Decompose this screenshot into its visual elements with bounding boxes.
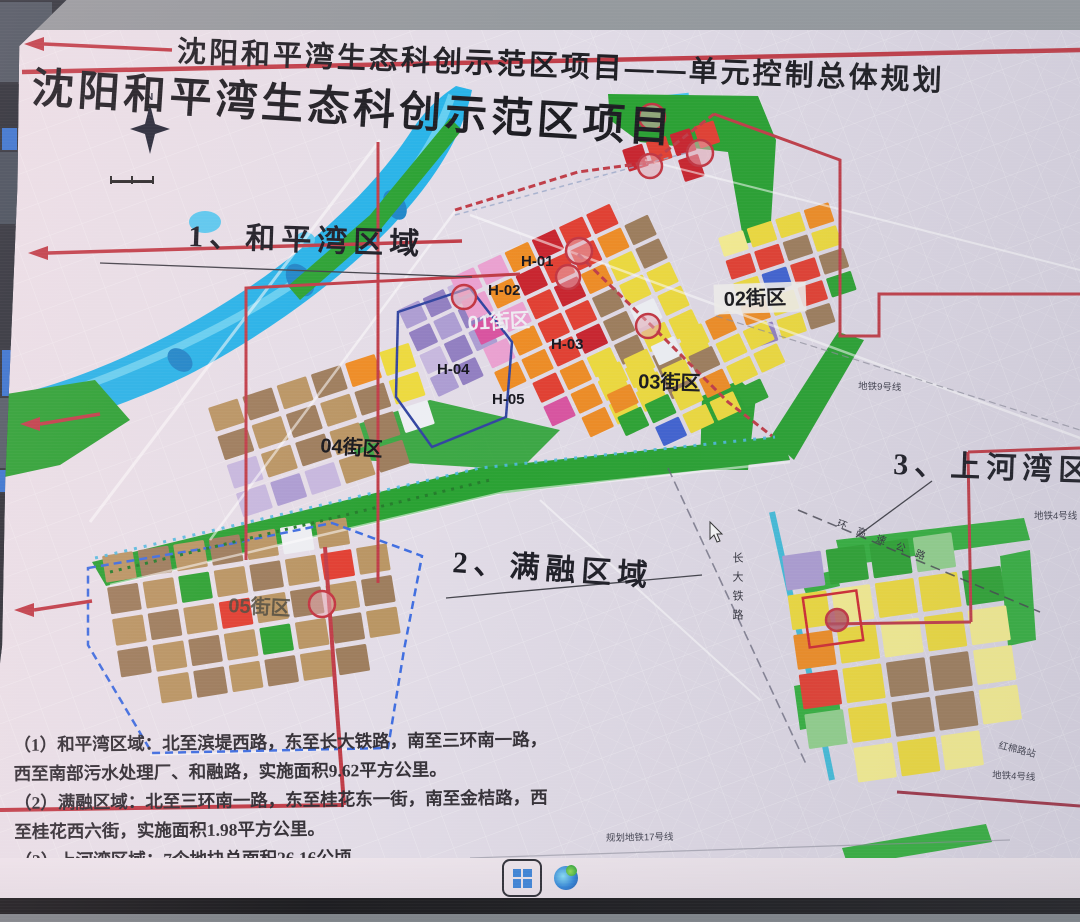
parcel xyxy=(886,657,929,697)
screen-bezel xyxy=(0,898,1080,914)
parcel xyxy=(229,661,264,693)
parcel xyxy=(804,709,847,749)
parcel xyxy=(285,555,320,587)
parcel xyxy=(153,640,188,672)
parcel xyxy=(875,578,918,618)
parcel xyxy=(897,736,940,776)
unit-h01-label: H-01 xyxy=(521,253,554,270)
district-02-label: 02街区 xyxy=(723,285,786,311)
metro-9-label: 地铁9号线 xyxy=(858,380,902,394)
parcel xyxy=(117,646,152,678)
parcel xyxy=(193,666,228,698)
unit-h03-label: H-03 xyxy=(551,336,584,353)
parcel xyxy=(148,609,183,641)
parcel xyxy=(848,703,891,743)
windows-start-icon xyxy=(513,869,532,888)
district-05-label: 05街区 xyxy=(228,593,291,620)
parcel xyxy=(143,577,178,609)
parcel xyxy=(244,529,279,561)
parcel xyxy=(929,651,972,691)
parcel xyxy=(826,544,869,584)
edge-browser-button[interactable] xyxy=(554,866,578,890)
parcel xyxy=(793,630,836,670)
photo-of-screen: N 1、和平湾区域 2、满融区域 3、上河湾区域 01街区 02街区 03街区 … xyxy=(0,0,1080,922)
parcel xyxy=(967,605,1010,645)
windows-taskbar xyxy=(0,858,1080,898)
parcel xyxy=(183,603,218,635)
unit-h04-label: H-04 xyxy=(437,361,470,378)
start-button[interactable] xyxy=(502,859,542,897)
parcel xyxy=(799,669,842,709)
parcel xyxy=(962,566,1005,606)
district-03-label: 03街区 xyxy=(638,369,701,395)
parcel xyxy=(366,607,401,639)
parcel xyxy=(335,644,370,676)
metro-17-label: 规划地铁17号线 xyxy=(606,831,674,844)
parcel xyxy=(259,623,294,655)
parcel xyxy=(973,645,1016,685)
parcel xyxy=(330,612,365,644)
parcel xyxy=(941,730,984,770)
parcel xyxy=(224,629,259,661)
parcel xyxy=(188,635,223,667)
parcel xyxy=(782,551,825,591)
parcel xyxy=(112,614,147,646)
unit-h05-label: H-05 xyxy=(492,391,525,408)
parcel xyxy=(295,618,330,650)
parcel xyxy=(107,583,142,615)
parcel xyxy=(178,571,213,603)
parcel xyxy=(249,560,284,592)
railway-label: 长大铁路 xyxy=(731,552,744,628)
parcel xyxy=(356,543,391,575)
unit-h02-label: H-02 xyxy=(488,282,521,299)
note-manrong: （2）满融区域：北至三环南一路，东至桂花东一街，南至金桔路，西至桂花西六街，实施… xyxy=(14,783,565,847)
parcel xyxy=(918,572,961,612)
parcel xyxy=(300,649,335,681)
metro-4-label-lower: 地铁4号线 xyxy=(992,769,1036,783)
parcel xyxy=(158,672,193,704)
notes-block: （1）和平湾区域：北至滨堤西路，东至长大铁路，南至三环南一路，西至南部污水处理厂… xyxy=(13,725,564,875)
parcel xyxy=(979,685,1022,725)
parcel xyxy=(842,663,885,703)
parcel xyxy=(935,691,978,731)
metro-4-label-upper: 地铁4号线 xyxy=(1034,510,1078,522)
parcel xyxy=(891,697,934,737)
parcel xyxy=(264,655,299,687)
parcel xyxy=(924,611,967,651)
parcel xyxy=(214,566,249,598)
parcel xyxy=(853,743,896,783)
district-01-label: 01街区 xyxy=(467,308,530,335)
note-hepingwan: （1）和平湾区域：北至滨堤西路，东至长大铁路，南至三环南一路，西至南部污水处理厂… xyxy=(13,725,564,789)
